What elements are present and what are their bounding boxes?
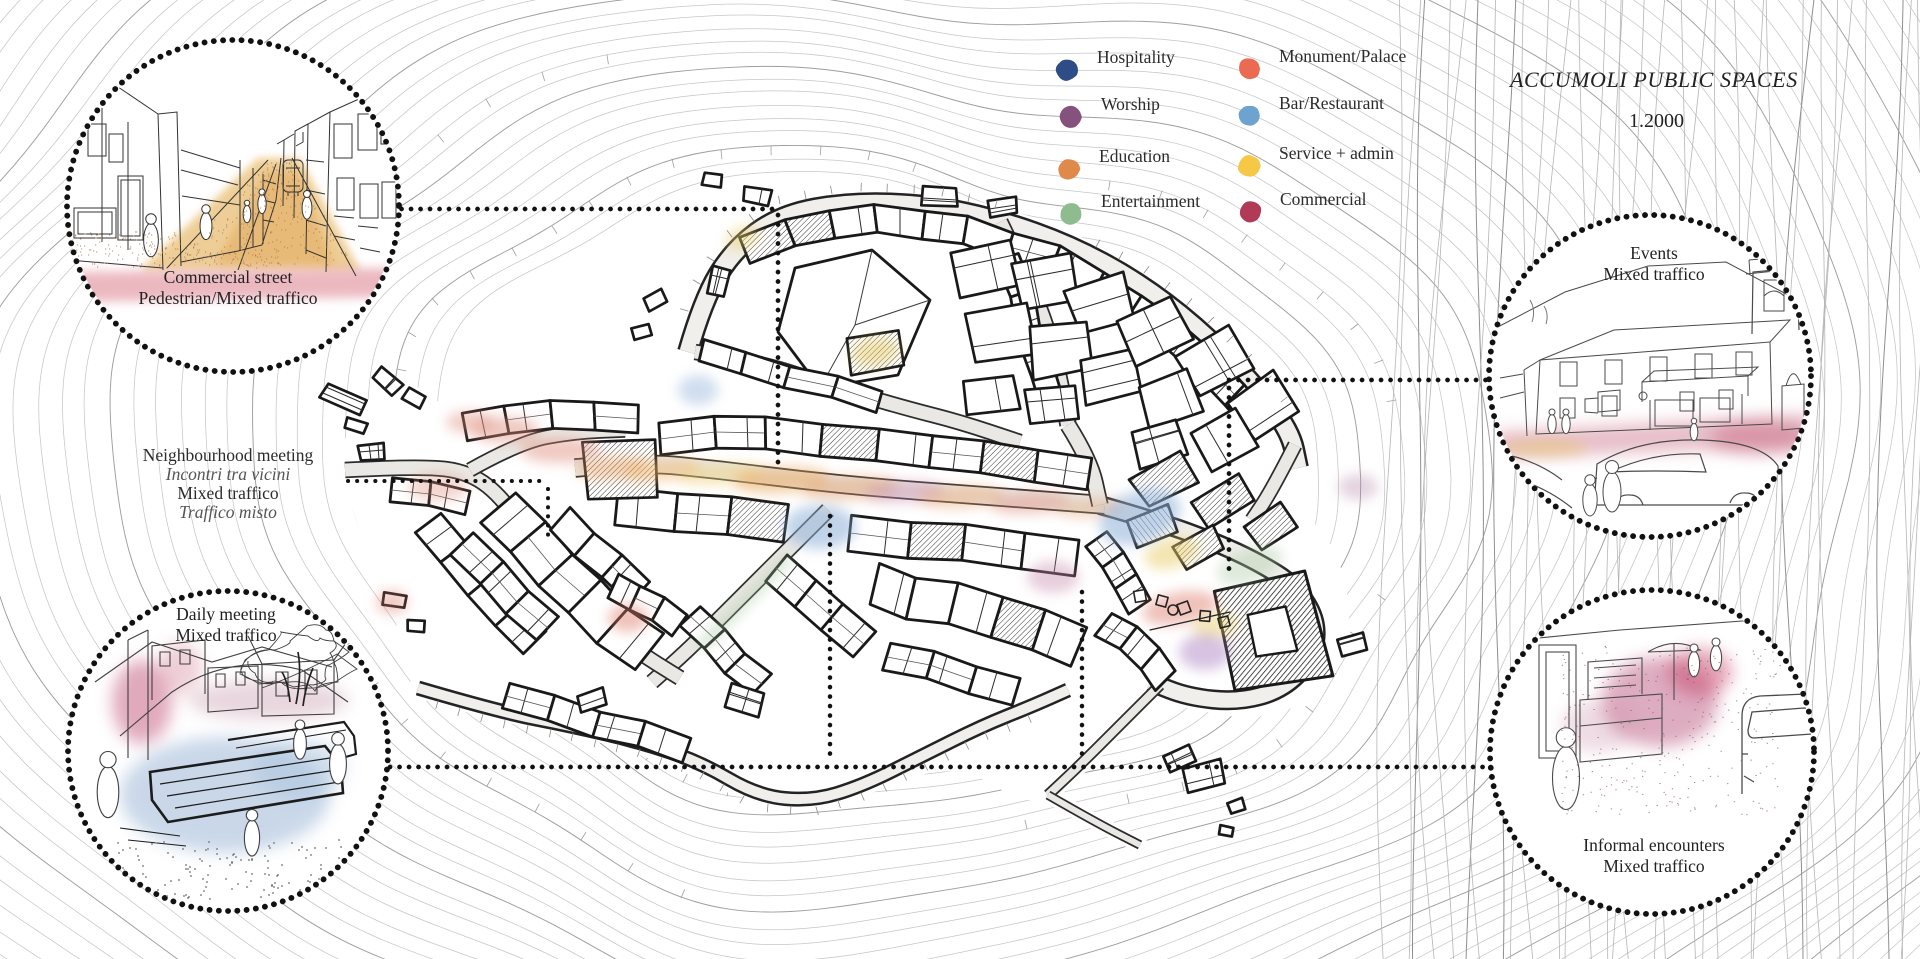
svg-text:ACCUMOLI PUBLIC SPACES: ACCUMOLI PUBLIC SPACES xyxy=(1508,67,1798,92)
svg-text:Bar/Restaurant: Bar/Restaurant xyxy=(1279,93,1384,113)
svg-text:Worship: Worship xyxy=(1101,94,1160,114)
svg-text:Monument/Palace: Monument/Palace xyxy=(1279,46,1407,66)
svg-text:Commercial: Commercial xyxy=(1280,189,1367,209)
svg-text:Mixed traffico: Mixed traffico xyxy=(1603,264,1704,284)
svg-text:Pedestrian/Mixed traffico: Pedestrian/Mixed traffico xyxy=(139,288,318,308)
svg-text:Mixed traffico: Mixed traffico xyxy=(177,483,278,503)
svg-text:Incontri tra vicini: Incontri tra vicini xyxy=(165,464,291,484)
svg-text:Service + admin: Service + admin xyxy=(1279,143,1394,163)
svg-text:Commercial street: Commercial street xyxy=(164,267,293,287)
svg-text:Neighbourhood meeting: Neighbourhood meeting xyxy=(143,445,314,465)
svg-text:Education: Education xyxy=(1099,146,1170,166)
svg-text:Events: Events xyxy=(1630,243,1678,263)
svg-text:Entertainment: Entertainment xyxy=(1101,191,1200,211)
svg-text:Hospitality: Hospitality xyxy=(1097,47,1175,67)
svg-text:Mixed traffico: Mixed traffico xyxy=(175,625,276,645)
svg-text:Mixed traffico: Mixed traffico xyxy=(1603,856,1704,876)
svg-text:Daily meeting: Daily meeting xyxy=(176,604,276,624)
svg-text:Traffico misto: Traffico misto xyxy=(179,502,277,522)
svg-text:Informal encounters: Informal encounters xyxy=(1583,835,1725,855)
svg-text:1.2000: 1.2000 xyxy=(1629,110,1684,132)
